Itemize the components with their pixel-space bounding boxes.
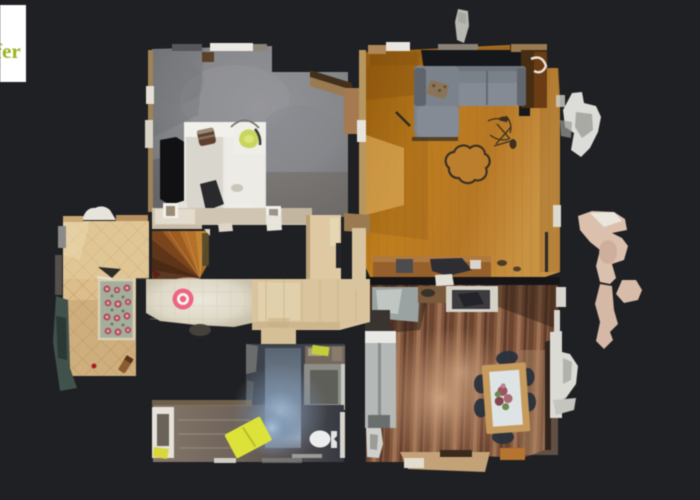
svg-text:fer: fer: [0, 39, 21, 63]
